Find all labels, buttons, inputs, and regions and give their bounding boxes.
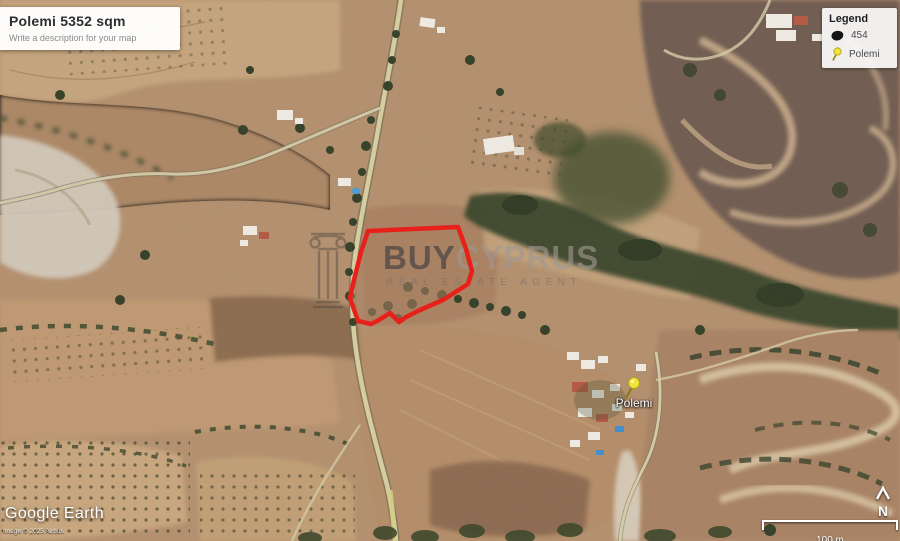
scale-bar-line <box>762 519 898 531</box>
map-title: Polemi 5352 sqm <box>9 13 172 30</box>
parcel-polygon-icon <box>829 29 845 42</box>
legend-item-parcel: 454 <box>829 29 891 42</box>
placemark-label: Polemi <box>608 396 660 410</box>
scale-bar-label: 100 m <box>762 535 898 541</box>
map-overlays <box>0 0 900 541</box>
placemark-pin[interactable] <box>626 378 640 399</box>
legend-item-polemi: Polemi <box>829 46 891 62</box>
north-arrow-icon <box>869 486 897 500</box>
map-title-card[interactable]: Polemi 5352 sqm Write a description for … <box>0 7 180 50</box>
scale-bar: 100 m <box>762 518 898 541</box>
pushpin-icon <box>829 46 843 62</box>
compass-north[interactable]: N <box>869 486 897 517</box>
google-earth-logo: Google Earth <box>5 505 104 523</box>
legend-title: Legend <box>829 13 891 25</box>
legend-item-label: Polemi <box>849 49 880 60</box>
map-viewport[interactable]: BUYCYPRUS REAL ESTATE AGENT Polemi Polem… <box>0 0 900 541</box>
imagery-copyright: Image © 2025 Airbus <box>3 528 64 535</box>
legend-item-label: 454 <box>851 30 868 41</box>
parcel-outline[interactable] <box>350 227 472 324</box>
map-description-placeholder[interactable]: Write a description for your map <box>9 33 172 43</box>
compass-label: N <box>869 505 897 517</box>
legend-panel: Legend 454 Polemi <box>822 8 897 68</box>
